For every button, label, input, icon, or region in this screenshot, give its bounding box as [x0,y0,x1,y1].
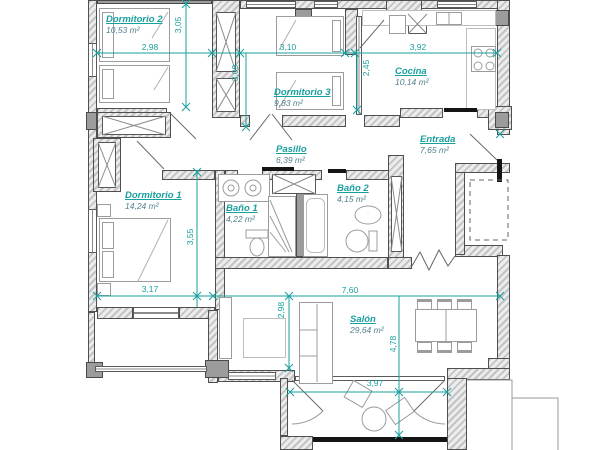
shower [268,196,296,257]
pillow [102,69,114,99]
pillow [332,20,341,52]
terrace-window-sill [313,437,447,442]
wall-dorm2-top-line [97,0,212,4]
room-label-dormitorio2: Dormitorio 2 10,53 m² [106,14,162,35]
pillow [102,251,114,278]
wall-dorm3-bottom [240,115,250,127]
dim-salon-left-h: 2,98 [276,293,286,327]
dim-d3-height: 3,09 [230,56,240,90]
window-cocina [437,1,477,8]
kitchen-sink [436,12,462,25]
room-area: 4,15 m² [337,194,369,204]
room-area: 10,53 m² [106,25,162,35]
wall-dorm1-bottom [97,307,133,319]
dim-d2-width: 2,98 [130,42,170,52]
balcony-railing [95,366,207,372]
closet-entrada [391,176,402,252]
room-area: 7,65 m² [420,145,455,155]
room-label-bano1: Baño 1 4,22 m² [226,203,258,224]
stove [471,46,496,72]
terrace-chair [385,397,415,426]
wall-salon-top [215,257,388,269]
window-salon-balcony [228,372,276,380]
pillar-right [495,112,509,128]
wall-terrace-left [280,378,288,436]
nightstand [97,283,111,296]
door-leaf-entrada [497,159,502,182]
pillow [102,222,114,249]
room-name: Cocina [395,66,429,77]
kitchen-cabinet [389,15,406,34]
window-dorm1-balcony [133,307,179,319]
dim-cocina-height: 2,45 [361,51,371,85]
wall-terrace-right [447,378,467,450]
room-name: Salón [350,314,384,325]
pillar-balcony [205,360,229,378]
room-area: 6,39 m² [276,155,307,165]
dim-salon-height: 4,78 [388,327,398,361]
bathtub-basin [306,198,325,253]
chair [417,299,432,310]
wall-terrace-corner [280,436,313,450]
room-area: 10,14 m² [395,77,429,87]
room-name: Dormitorio 2 [106,14,162,25]
door-leaf-bano1 [262,167,294,171]
chair [417,342,432,353]
chair [437,342,452,353]
floor-plan: Dormitorio 2 10,53 m² Dormitorio 3 9,83 … [0,0,600,450]
dim-d2-height: 3,05 [173,8,183,42]
wardrobe-dorm1 [98,142,116,188]
chair [457,342,472,353]
wall-dorm1-top [162,170,215,180]
wall-cocina-bottom [400,108,443,118]
room-name: Baño 2 [337,183,369,194]
room-name: Dormitorio 3 [274,87,330,98]
pillow [332,76,341,106]
room-label-dormitorio1: Dormitorio 1 14,24 m² [125,190,181,211]
room-label-bano2: Baño 2 4,15 m² [337,183,369,204]
wall-banos-top [346,170,390,180]
window-dorm3 [246,1,296,8]
wall-balcony-left [88,312,95,367]
wall-right-outer-low [497,255,510,360]
chair [457,299,472,310]
room-name: Baño 1 [226,203,258,214]
tv-unit [219,297,232,359]
room-label-cocina: Cocina 10,14 m² [395,66,429,87]
wardrobe-dorm1 [102,116,166,135]
window-top [314,1,338,8]
room-area: 9,83 m² [274,98,330,108]
room-name: Entrada [420,134,455,145]
sofa [299,302,333,384]
dim-salon-width: 7,60 [330,285,370,295]
dim-d3-width: 3,10 [268,42,308,52]
door-leaf-cocina [444,108,477,112]
nightstand [97,204,111,217]
break-symbol [412,250,455,270]
room-label-dormitorio3: Dormitorio 3 9,83 m² [274,87,330,108]
dim-cocina-width: 3,92 [398,42,438,52]
room-name: Pasillo [276,144,307,155]
room-label-pasillo: Pasillo 6,39 m² [276,144,307,165]
wall-patio-left [455,163,465,255]
dim-terraza-width: 3,97 [355,378,395,388]
wall-dorm3-bottom [282,115,346,127]
room-label-salon: Salón 29,64 m² [350,314,384,335]
kitchen-counter [362,10,496,26]
room-area: 4,22 m² [226,214,258,224]
wall-pasillo-top [364,115,400,127]
dim-d1-width: 3,17 [130,284,170,294]
room-name: Dormitorio 1 [125,190,181,201]
room-area: 29,64 m² [350,325,384,335]
window-dorm2 [88,43,97,77]
bath-vanity [218,174,270,202]
chair [437,299,452,310]
closet-pasillo [272,174,316,194]
room-label-entrada: Entrada 7,65 m² [420,134,455,155]
dim-d1-height: 3,55 [185,220,195,254]
wall-salon-top [388,257,412,269]
room-area: 14,24 m² [125,201,181,211]
window-dorm1 [88,209,97,253]
pillar-left [86,112,97,130]
door-leaf-bano2 [328,169,346,173]
dining-table [415,309,477,342]
pillar-right [495,10,509,26]
